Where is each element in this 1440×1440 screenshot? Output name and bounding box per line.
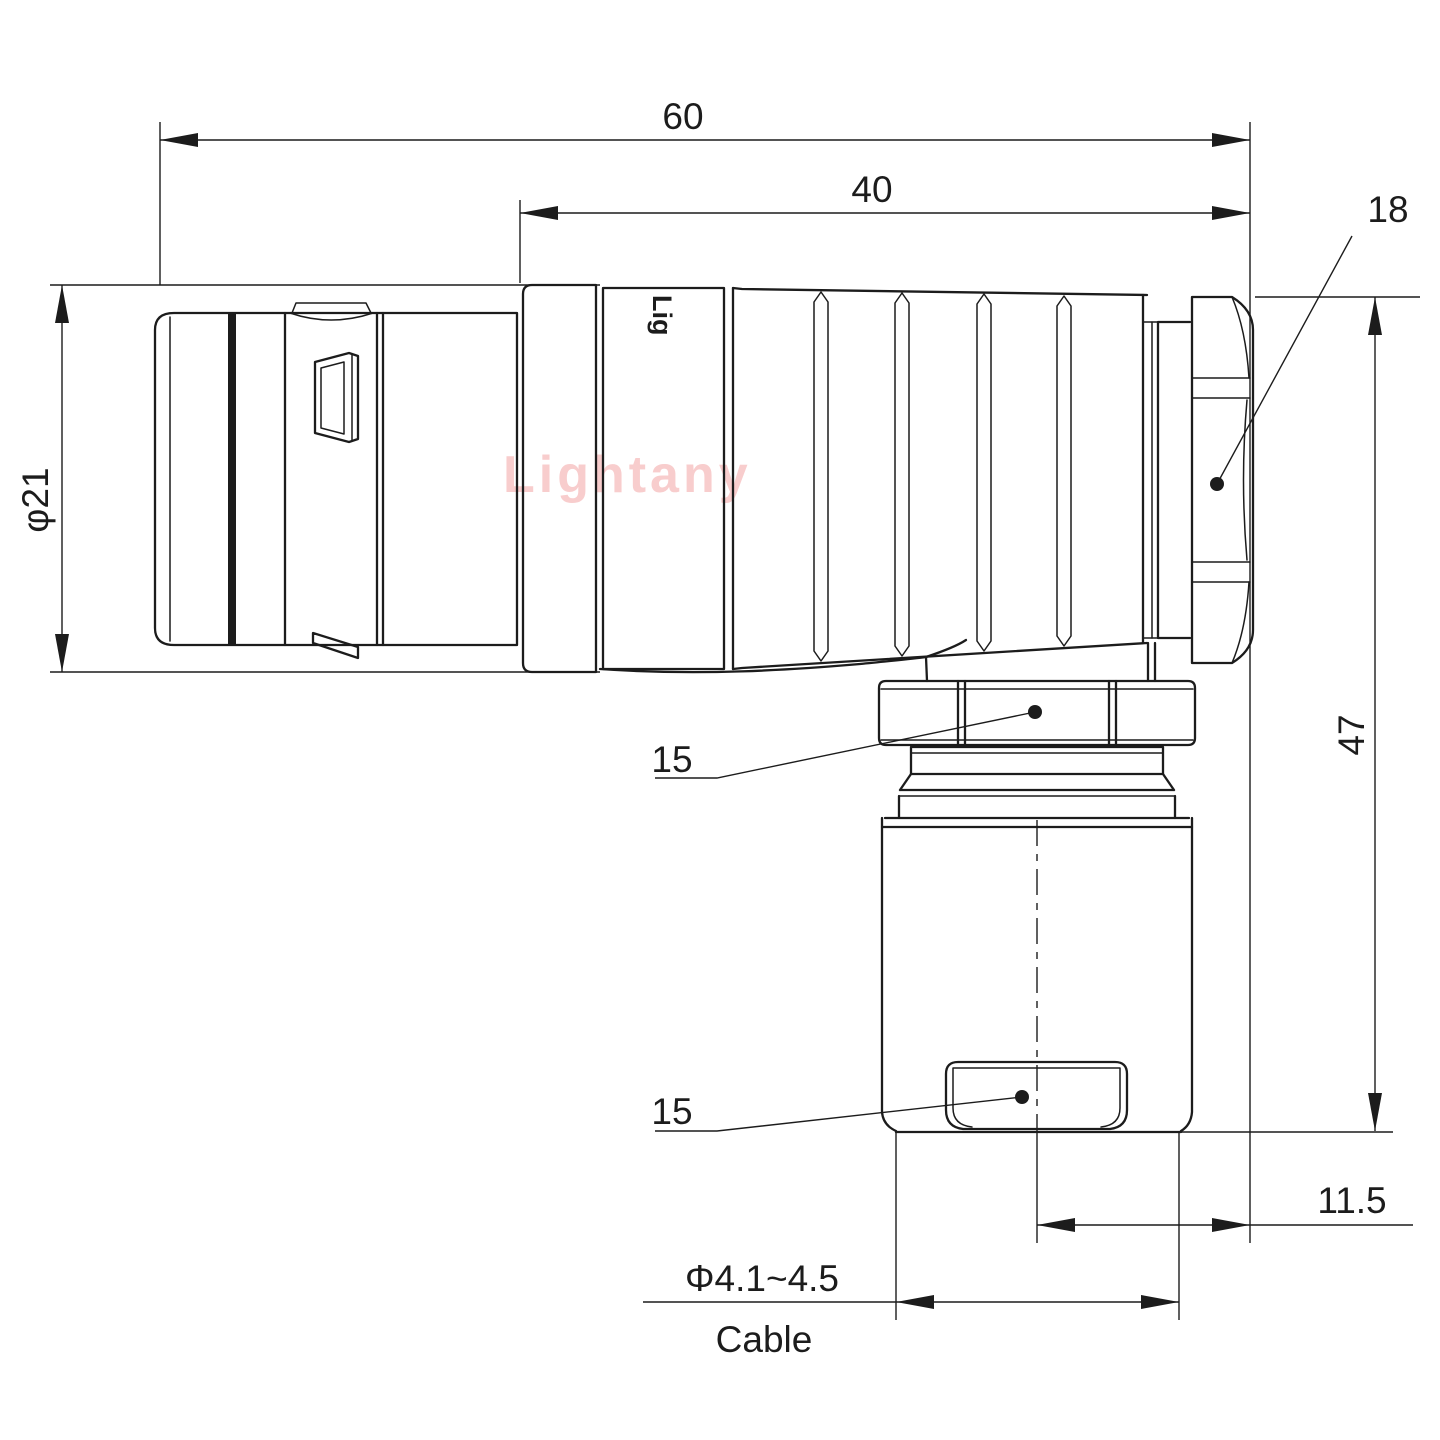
knurl-band — [1057, 296, 1071, 646]
connector-drawing: Lightany Lig — [0, 0, 1440, 1440]
callout-cable-clamp: 15 — [651, 1090, 1029, 1132]
cable-barrel — [882, 818, 1192, 1132]
dim-text-phi21: φ21 — [15, 467, 56, 532]
dimension-exit-offset: 11.5 — [1037, 1132, 1413, 1243]
dimension-total-height: 47 — [1181, 297, 1420, 1132]
dim-text-40: 40 — [851, 169, 892, 210]
dim-text-47: 47 — [1331, 714, 1372, 755]
callout-text-15-clamp: 15 — [651, 1091, 692, 1132]
callout-text-15-elbow: 15 — [651, 739, 692, 780]
callout-text-18: 18 — [1367, 189, 1408, 230]
dim-text-60: 60 — [662, 96, 703, 137]
knurl-band — [814, 292, 828, 661]
callout-backshell-nut: 18 — [1210, 189, 1409, 491]
plug-body — [155, 303, 517, 658]
dim-text-11-5: 11.5 — [1317, 1180, 1386, 1221]
key-tab — [292, 303, 371, 313]
technical-drawing-page: Lightany Lig — [0, 0, 1440, 1440]
knurl-band — [895, 293, 909, 656]
brand-logo: Lig — [647, 295, 677, 336]
plug-seal-band — [228, 313, 236, 645]
latch-window — [315, 353, 358, 442]
dim-text-cable-diameter: Φ4.1~4.5 — [685, 1258, 839, 1299]
neck-profile — [899, 747, 1175, 818]
dimension-cable: Φ4.1~4.5 Cable — [643, 1132, 1179, 1360]
watermark-text: Lightany — [503, 446, 752, 504]
dimension-rear-length: 40 — [520, 169, 1250, 283]
dim-text-cable-label: Cable — [716, 1319, 813, 1360]
backshell-nut — [1143, 297, 1253, 663]
knurl-band — [977, 294, 991, 651]
knurled-grip — [733, 288, 1152, 669]
callout-elbow-nut: 15 — [651, 705, 1042, 780]
